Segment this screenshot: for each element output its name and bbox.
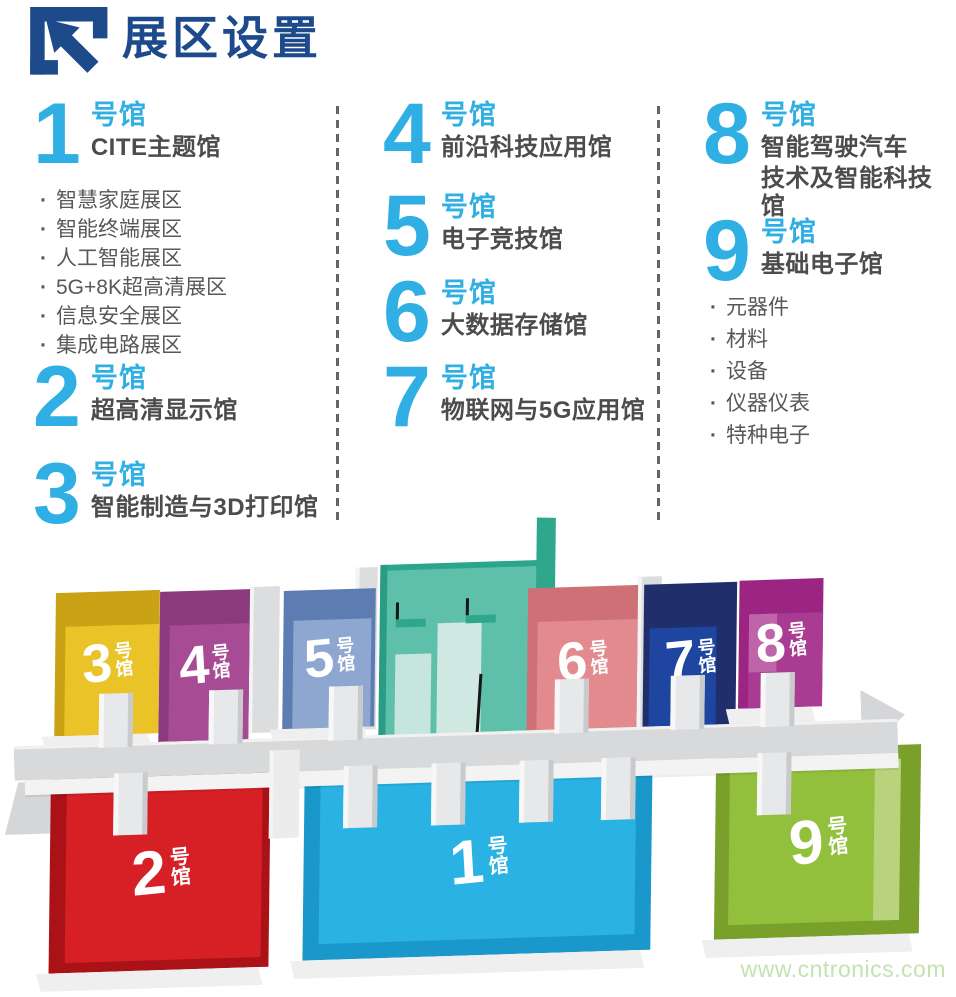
central-hall-partition	[396, 602, 399, 619]
hall-2-number: 2	[33, 364, 78, 431]
walkway-stub	[343, 765, 378, 828]
category-item: 特种电子	[710, 420, 810, 452]
hall-2-suffix: 号馆	[91, 365, 238, 393]
wall-piece	[269, 750, 300, 839]
hall-9-name: 基础电子馆	[761, 251, 884, 279]
category-item: 元器件	[710, 292, 810, 324]
hall-4-label-suffix: 号馆	[209, 642, 230, 689]
map-hall-2: 2 号馆	[49, 772, 271, 974]
hall-6-number: 6	[383, 279, 428, 346]
walkway-stub	[328, 686, 363, 741]
hall-8-suffix: 号馆	[761, 102, 956, 130]
section-hall-2: 2 号馆 超高清显示馆	[33, 364, 238, 431]
hall-7-number: 7	[383, 364, 428, 431]
corner-bracket-arrow-icon	[30, 7, 110, 77]
hall-9-category-list: 元器件 材料 设备 仪器仪表 特种电子	[710, 292, 810, 452]
section-hall-3: 3 号馆 智能制造与3D打印馆	[33, 461, 319, 528]
hall-9-label-suffix: 号馆	[823, 815, 847, 870]
exhibition-layout-infographic: 展区设置 1 号馆 CITE主题馆 智慧家庭展区 智能终端展区 人工智能展区 5…	[0, 0, 956, 997]
hall-1-number: 1	[33, 101, 78, 168]
zone-item: 5G+8K超高清展区	[40, 273, 227, 302]
hall-3-label-number: 3	[81, 638, 112, 690]
section-hall-9: 9 号馆 基础电子馆	[703, 218, 883, 285]
wall-piece	[248, 586, 280, 733]
central-hall-shelf	[466, 614, 496, 623]
walkway-stub	[113, 772, 148, 835]
hall-2-label-number: 2	[130, 844, 166, 904]
hall-7-name: 物联网与5G应用馆	[441, 397, 646, 425]
hall-3-number: 3	[33, 461, 78, 528]
category-item: 设备	[710, 356, 810, 388]
column-divider-1	[336, 106, 339, 520]
hall-4-label: 4 号馆	[178, 638, 231, 693]
hall-4-label-number: 4	[178, 640, 209, 692]
hall-4-number: 4	[383, 101, 428, 168]
hall-2-name: 超高清显示馆	[91, 397, 238, 425]
hall-4-suffix: 号馆	[441, 102, 613, 130]
page-title: 展区设置	[122, 2, 322, 68]
hall-1-label-number: 1	[448, 833, 484, 893]
hall-5-label: 5 号馆	[303, 631, 356, 686]
section-hall-7: 7 号馆 物联网与5G应用馆	[383, 364, 645, 431]
hall-9-label: 9 号馆	[788, 811, 848, 874]
hall-3-name: 智能制造与3D打印馆	[91, 494, 319, 522]
watermark: www.cntronics.com	[741, 956, 946, 983]
exhibition-floor-map: 3 号馆 4 号馆 5 号馆	[0, 501, 956, 997]
zone-item: 人工智能展区	[40, 244, 227, 273]
map-hall-9: 9 号馆	[714, 744, 921, 940]
hall-1-zone-list: 智慧家庭展区 智能终端展区 人工智能展区 5G+8K超高清展区 信息安全展区 集…	[40, 186, 227, 360]
central-hall-shelf	[396, 619, 426, 628]
hall-1-label: 1 号馆	[448, 830, 508, 893]
walkway-stub	[554, 678, 589, 733]
hall-8-label-suffix: 号馆	[786, 620, 807, 667]
hall-1-name: CITE主题馆	[91, 134, 221, 162]
hall-5-label-number: 5	[303, 634, 334, 686]
walkway-stub	[431, 762, 466, 825]
zone-item: 智能终端展区	[40, 215, 227, 244]
hall-5-number: 5	[383, 193, 428, 260]
walkway-stub	[208, 689, 243, 744]
zone-item: 智慧家庭展区	[40, 186, 227, 215]
column-divider-2	[657, 106, 660, 520]
hall-3-label: 3 号馆	[81, 636, 134, 691]
hall-3-suffix: 号馆	[91, 462, 319, 490]
hall-5-suffix: 号馆	[441, 194, 564, 222]
hall-6-label-suffix: 号馆	[587, 638, 608, 685]
section-hall-6: 6 号馆 大数据存储馆	[383, 279, 588, 346]
hall-9-number: 9	[703, 218, 748, 285]
section-hall-4: 4 号馆 前沿科技应用馆	[383, 101, 612, 168]
hall-4-name: 前沿科技应用馆	[441, 134, 613, 162]
central-hall-partition	[466, 598, 469, 615]
hall-8-name-line2: 技术及智能科技馆	[761, 165, 956, 221]
walkway-stub	[99, 693, 134, 748]
walkway-stub	[757, 752, 792, 815]
hall-6-suffix: 号馆	[441, 280, 588, 308]
hall-5-label-suffix: 号馆	[334, 635, 355, 682]
walkway-stub	[760, 672, 795, 727]
hall-8-label-number: 8	[754, 618, 785, 670]
hall-1-label-suffix: 号馆	[483, 834, 507, 889]
hall-9-label-number: 9	[788, 813, 824, 873]
hall-1-suffix: 号馆	[91, 102, 221, 130]
section-hall-5: 5 号馆 电子竞技馆	[383, 193, 563, 260]
walkway-stub	[601, 757, 636, 820]
category-item: 材料	[710, 324, 810, 356]
walkway-stub	[519, 760, 554, 823]
hall-8-label: 8 号馆	[754, 616, 807, 671]
hall-6-name: 大数据存储馆	[441, 312, 588, 340]
hall-8-name: 智能驾驶汽车	[761, 134, 956, 162]
category-item: 仪器仪表	[710, 388, 810, 420]
hall-8-number: 8	[703, 101, 748, 168]
hall-9-suffix: 号馆	[761, 219, 884, 247]
hall-5-name: 电子竞技馆	[441, 226, 564, 254]
walkway-stub	[670, 675, 705, 730]
hall-2-label: 2 号馆	[130, 841, 190, 904]
hall-3-label-suffix: 号馆	[112, 640, 133, 687]
zone-item: 信息安全展区	[40, 302, 227, 331]
section-hall-1: 1 号馆 CITE主题馆	[33, 101, 221, 168]
hall-2-label-suffix: 号馆	[165, 845, 189, 900]
hall-7-suffix: 号馆	[441, 365, 646, 393]
